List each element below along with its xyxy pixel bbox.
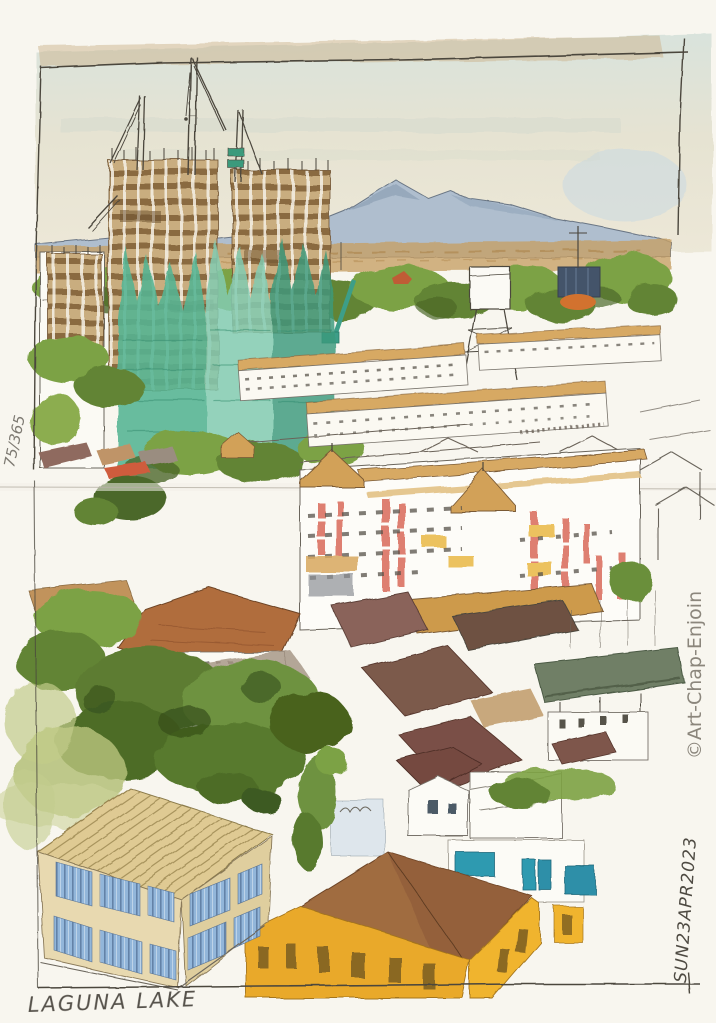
right-gable-sketches (640, 452, 714, 560)
watercolor-sketch-page: LAGUNA LAKE 75/365 ©Art-Chap-Enjoin SUN2… (0, 0, 716, 1023)
edition-number-text: 75/365 (0, 413, 29, 468)
right-small-houses (548, 712, 648, 764)
urban-sketch-art: LAGUNA LAKE 75/365 ©Art-Chap-Enjoin SUN2… (0, 0, 716, 1023)
date-text: SUN23APR2023 (671, 836, 701, 984)
caption-text: LAGUNA LAKE (27, 987, 197, 1017)
credit-text: ©Art-Chap-Enjoin (684, 591, 706, 759)
cream-building (4, 770, 280, 990)
